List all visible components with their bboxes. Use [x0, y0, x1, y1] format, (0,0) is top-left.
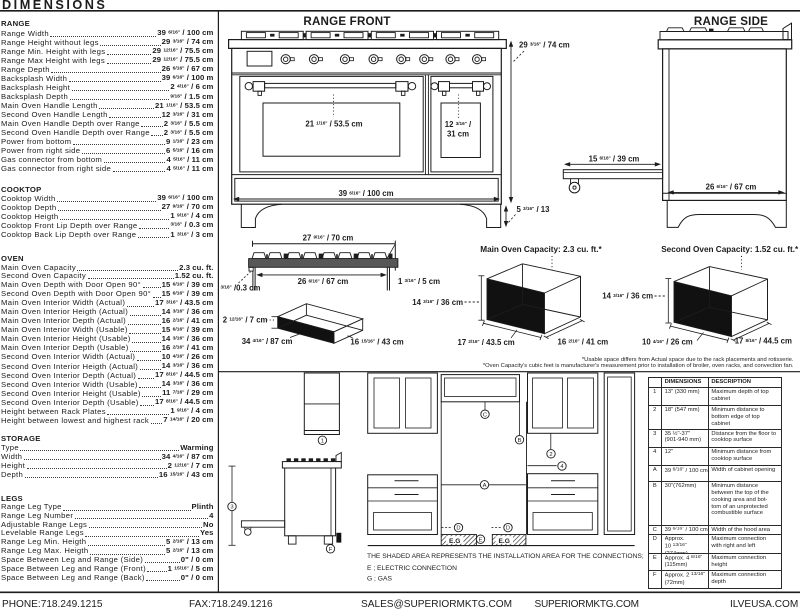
- svg-text:D: D: [506, 526, 510, 532]
- svg-text:31 cm: 31 cm: [447, 130, 469, 139]
- svg-text:14 3/16" / 36 cm: 14 3/16" / 36 cm: [602, 292, 653, 301]
- svg-text:16 2/16" / 41 cm: 16 2/16" / 41 cm: [558, 337, 609, 346]
- svg-text:15 6/16" / 39 cm: 15 6/16" / 39 cm: [589, 154, 640, 163]
- svg-text:D: D: [456, 526, 460, 532]
- svg-text:E.G: E.G: [499, 538, 510, 545]
- svg-text:29 3/16" / 74 cm: 29 3/16" / 74 cm: [519, 41, 570, 50]
- svg-text:2: 2: [549, 452, 552, 458]
- svg-text:1: 1: [321, 438, 324, 444]
- svg-text:34 4/16" / 87 cm: 34 4/16" / 87 cm: [242, 337, 293, 346]
- svg-text:17 8/16" / 44.5 cm: 17 8/16" / 44.5 cm: [735, 337, 792, 346]
- svg-text:16 15/16" / 43 cm: 16 15/16" / 43 cm: [350, 337, 403, 346]
- svg-text:5 3/16" / 13: 5 3/16" / 13: [517, 205, 551, 214]
- svg-text:17 2/16" / 43.5 cm: 17 2/16" / 43.5 cm: [458, 338, 515, 347]
- svg-text:Main Oven Capacity: 2.3 cu. ft: Main Oven Capacity: 2.3 cu. ft.*: [480, 245, 602, 254]
- svg-text:39 6/16" / 100 cm: 39 6/16" / 100 cm: [338, 189, 393, 198]
- svg-text:3/16" /0.3 cm: 3/16" /0.3 cm: [221, 283, 261, 292]
- svg-text:1 3/16" / 5 cm: 1 3/16" / 5 cm: [398, 277, 440, 286]
- svg-text:B: B: [518, 438, 522, 444]
- svg-text:10 4/16" / 26 cm: 10 4/16" / 26 cm: [642, 338, 693, 347]
- svg-text:Second Oven Capacity: 1.52 cu.: Second Oven Capacity: 1.52 cu. ft.*: [661, 245, 799, 254]
- svg-text:3: 3: [230, 505, 233, 511]
- svg-text:C: C: [483, 412, 487, 418]
- svg-text:*Oven Capacity's cubic feet is: *Oven Capacity's cubic feet is manufactu…: [483, 363, 794, 369]
- svg-text:F: F: [329, 547, 333, 553]
- svg-text:27 9/16" / 70 cm: 27 9/16" / 70 cm: [303, 233, 354, 242]
- svg-text:14 3/16" / 36 cm: 14 3/16" / 36 cm: [412, 298, 463, 307]
- svg-text:21 1/16" / 53.5 cm: 21 1/16" / 53.5 cm: [305, 120, 362, 129]
- svg-text:2 12/16" / 7 cm: 2 12/16" / 7 cm: [223, 315, 268, 324]
- svg-text:E.G: E.G: [449, 538, 460, 545]
- svg-text:E ; ELECTRIC CONNECTION: E ; ELECTRIC CONNECTION: [367, 565, 457, 572]
- svg-text:*Usable space differs from Act: *Usable space differs from Actual space …: [582, 357, 794, 363]
- svg-text:26 6/16" / 67 cm: 26 6/16" / 67 cm: [298, 277, 349, 286]
- svg-text:G ; GAS: G ; GAS: [367, 576, 392, 583]
- svg-text:12 3/16" /: 12 3/16" /: [445, 120, 472, 129]
- svg-text:THE SHADED AREA REPRESENTS THE: THE SHADED AREA REPRESENTS THE INSTALLAT…: [367, 553, 644, 560]
- svg-text:E: E: [479, 537, 483, 543]
- svg-text:A: A: [483, 483, 487, 489]
- svg-text:26 6/16" / 67 cm: 26 6/16" / 67 cm: [706, 183, 757, 192]
